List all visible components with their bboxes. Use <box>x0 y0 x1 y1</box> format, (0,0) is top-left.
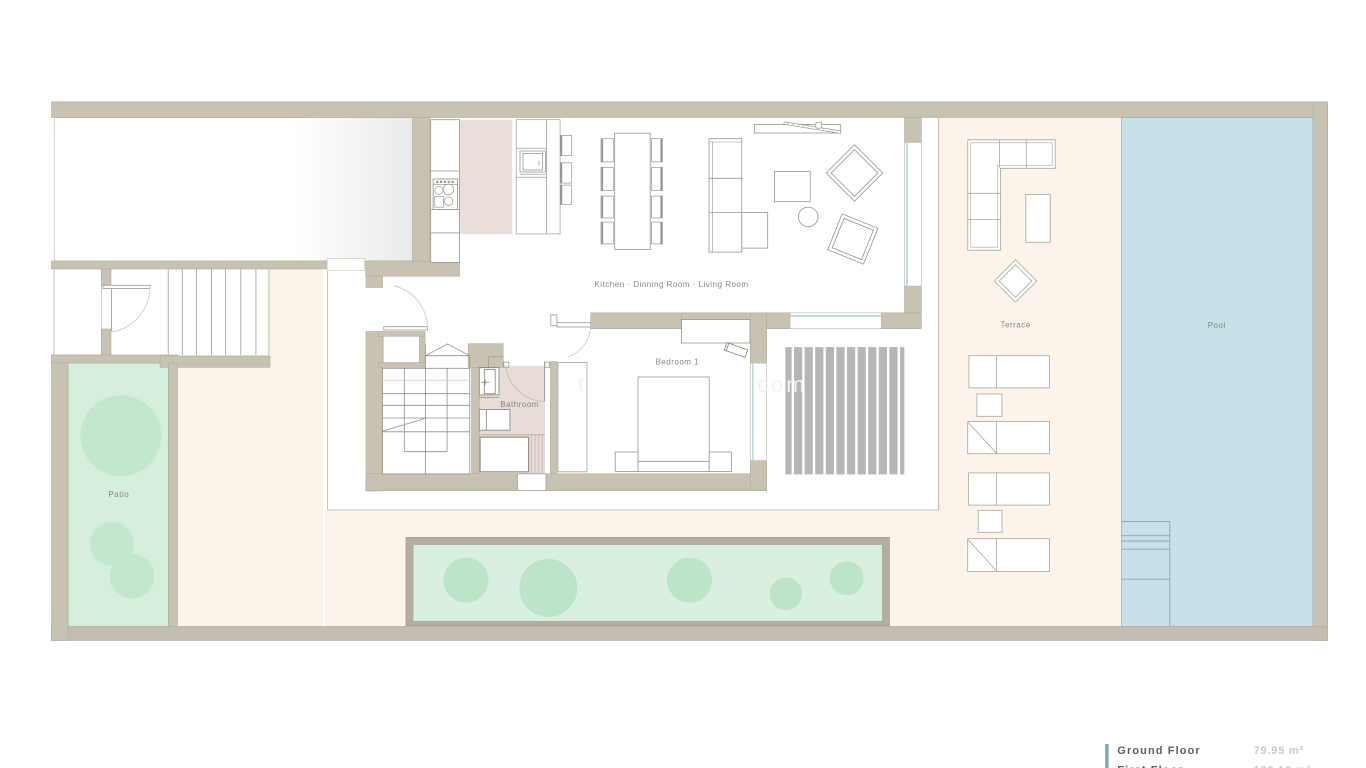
svg-text:t: t <box>578 374 587 396</box>
svg-text:Pool: Pool <box>1208 321 1226 330</box>
svg-text:Patio: Patio <box>108 490 129 499</box>
svg-text:Ground Floor: Ground Floor <box>1117 745 1200 757</box>
svg-text:Kitchen · Dinning Room · Livin: Kitchen · Dinning Room · Living Room <box>594 280 748 289</box>
svg-text:100.10 m²: 100.10 m² <box>1254 765 1311 768</box>
svg-text:Terrace: Terrace <box>1001 320 1031 329</box>
svg-text:First Floor: First Floor <box>1117 765 1184 768</box>
svg-text:com: com <box>757 372 808 397</box>
svg-text:Bathroom: Bathroom <box>500 400 539 409</box>
svg-text:79.95 m²: 79.95 m² <box>1254 745 1304 757</box>
svg-text:Bedroom 1: Bedroom 1 <box>655 358 699 367</box>
